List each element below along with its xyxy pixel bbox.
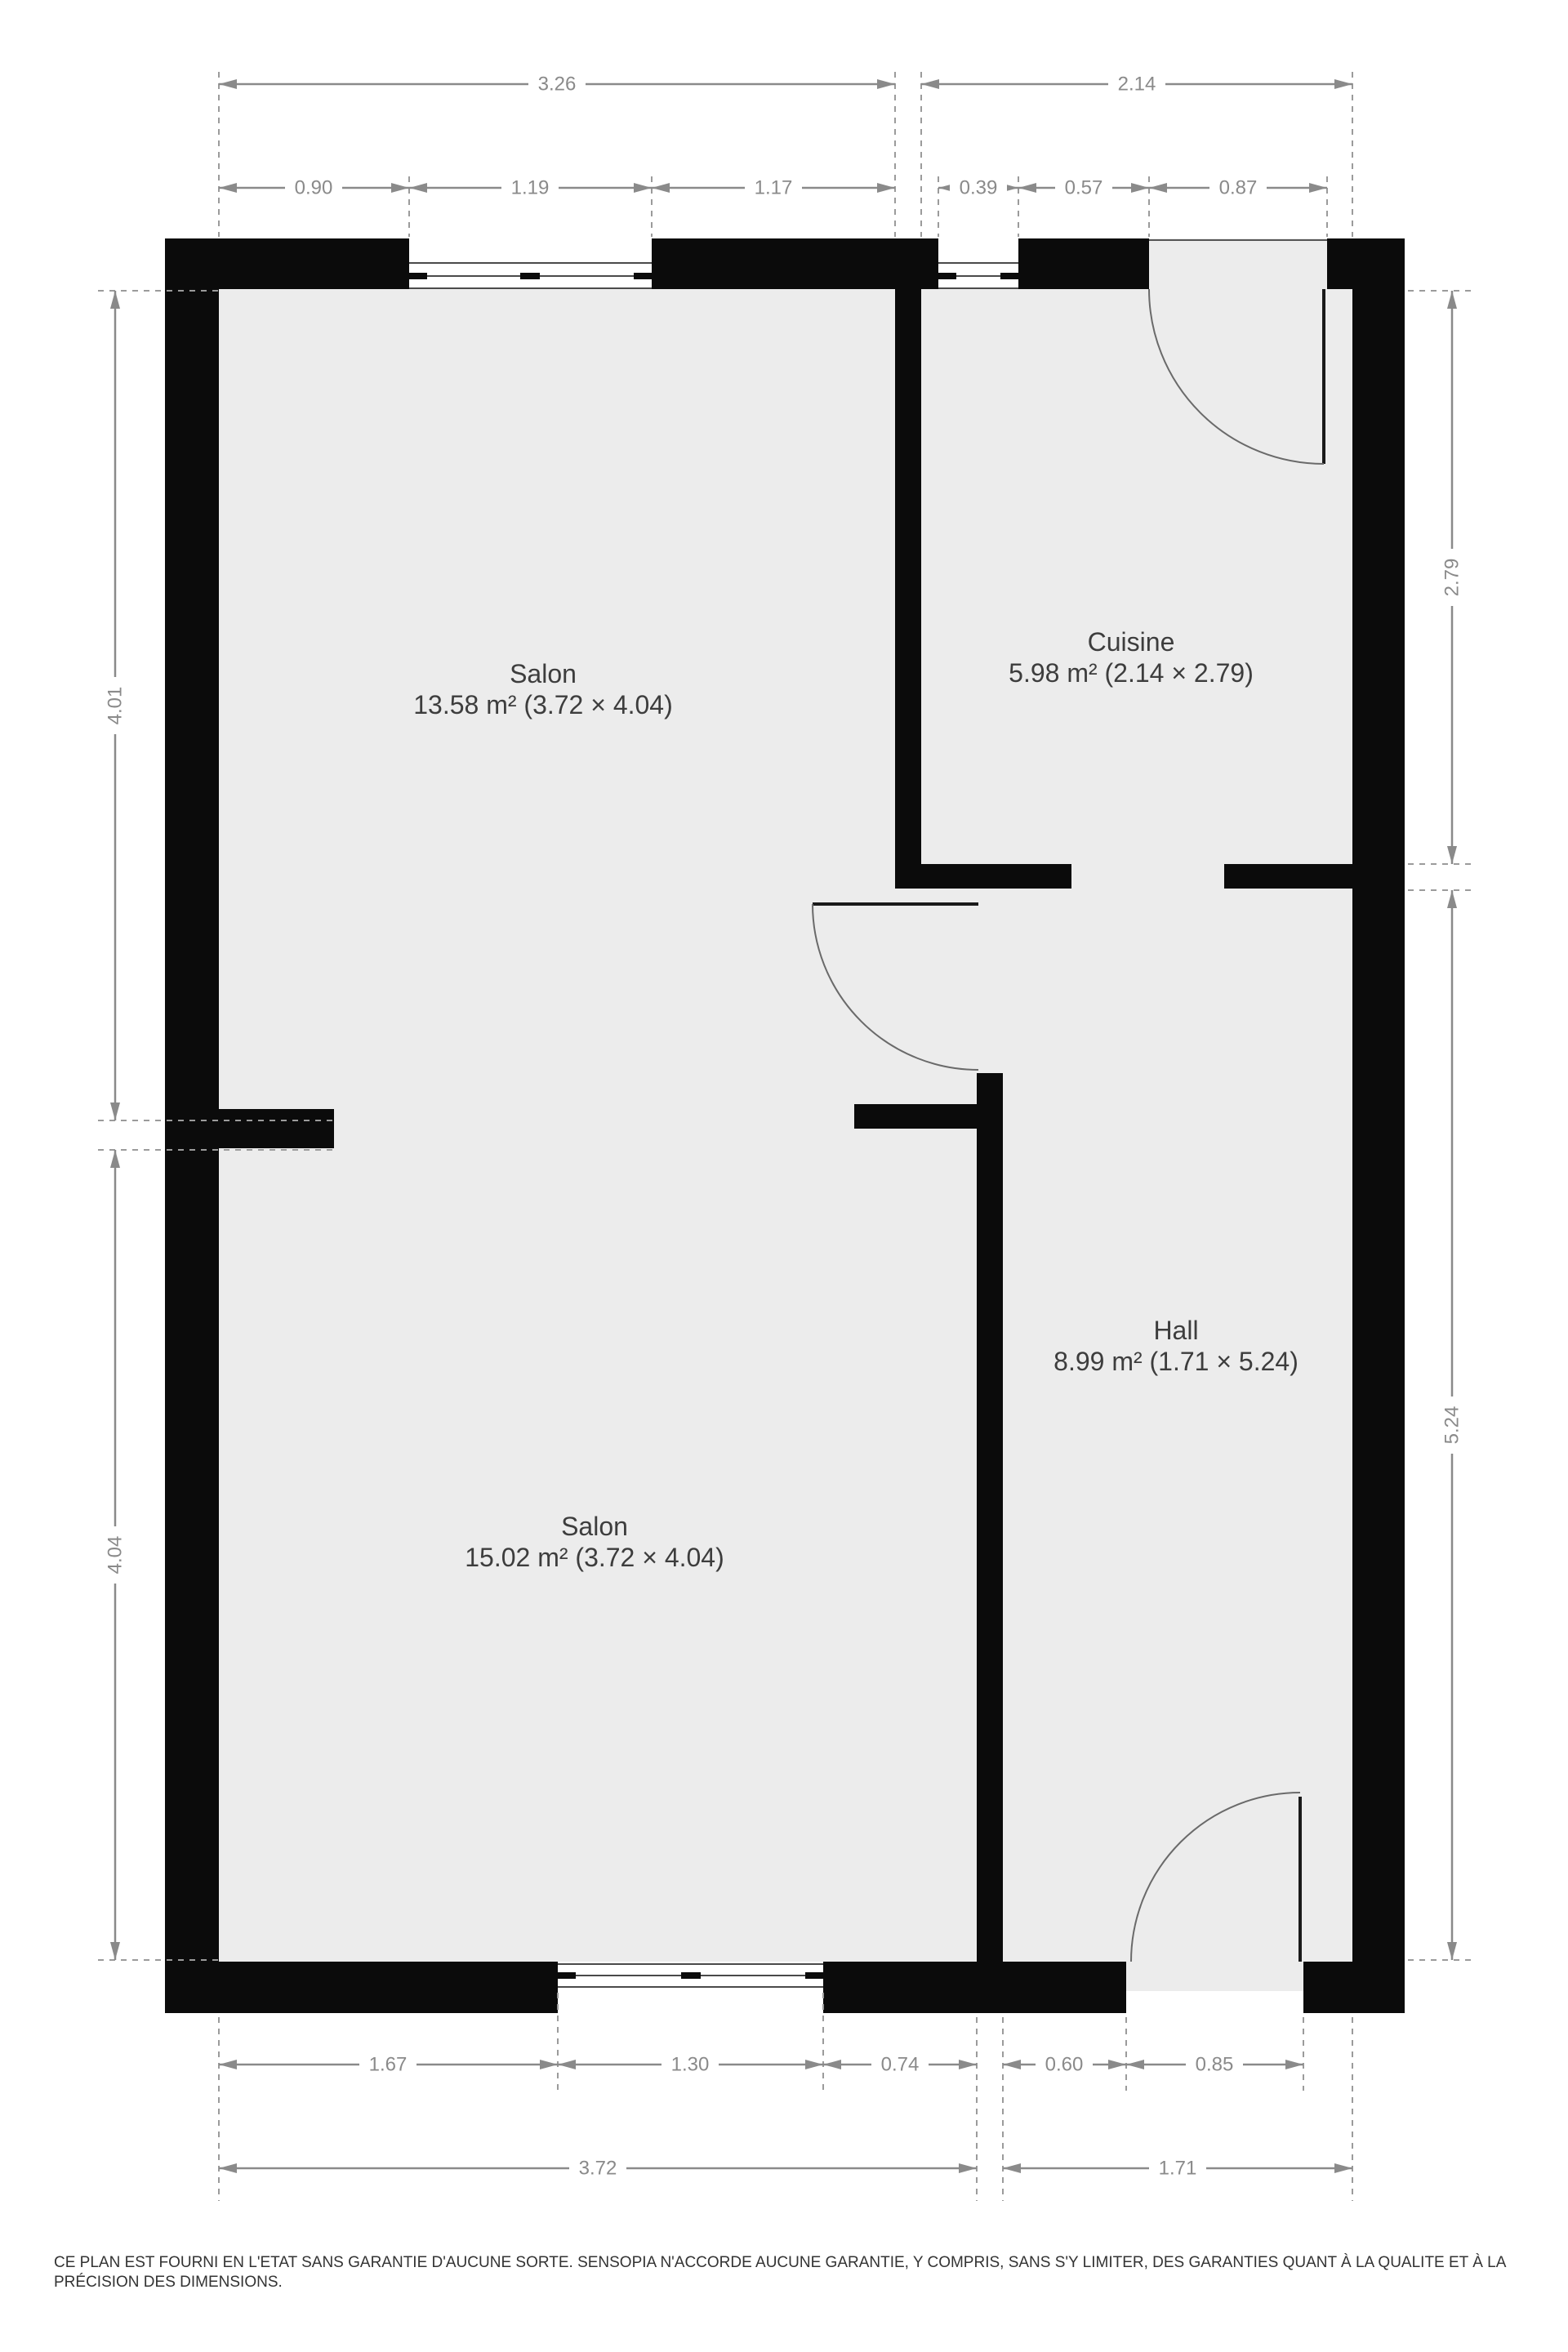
dim-label-group: 1.17	[745, 176, 802, 200]
wall-segment-bottom-1	[165, 1962, 558, 2013]
wall-right	[1352, 238, 1405, 2013]
dimension-label: 4.04	[105, 1536, 127, 1575]
floor-area-top-door-gap	[1149, 238, 1327, 289]
dim-label-group: 1.71	[1149, 2156, 1206, 2180]
dim-label-group: 1.67	[359, 2052, 416, 2077]
disclaimer-line-1: CE PLAN EST FOURNI EN L'ETAT SANS GARANT…	[54, 2254, 1507, 2271]
dimension-label: 1.19	[511, 177, 550, 199]
dim-label-group: 1.19	[501, 176, 559, 200]
room-size-label: 15.02 m² (3.72 × 4.04)	[465, 1543, 724, 1572]
dimension-label: 1.17	[755, 177, 793, 199]
dimension-label: 5.24	[1441, 1406, 1463, 1445]
dim-label-group: 0.85	[1186, 2052, 1243, 2077]
dim-label-group: 0.87	[1209, 176, 1267, 200]
dimension-label: 3.72	[579, 2158, 617, 2180]
dimension-label: 0.60	[1045, 2054, 1084, 2076]
window-tick	[681, 1972, 701, 1979]
wall-stub-left	[165, 1109, 334, 1148]
window-tick	[558, 1972, 576, 1979]
floor-areas	[219, 238, 1352, 1991]
wall-divider-right	[1224, 864, 1352, 889]
window-tick	[409, 273, 427, 279]
floor-area	[219, 289, 1352, 1962]
wall-segment-bottom-2	[823, 1962, 1126, 2013]
dimension-label: 4.01	[105, 687, 127, 725]
dim-label-group: 4.01	[103, 677, 127, 734]
wall-hall-left	[977, 1073, 1003, 2013]
dimension-label: 0.39	[960, 177, 998, 199]
window-1	[409, 238, 652, 289]
window-2	[938, 238, 1018, 289]
dimension-label: 0.90	[295, 177, 333, 199]
dim-label-group: 1.30	[661, 2052, 719, 2077]
room-name-label: Cuisine	[1088, 627, 1175, 657]
dim-label-group: 2.14	[1108, 72, 1165, 96]
dim-label-group: 0.57	[1055, 176, 1112, 200]
floor-plan-svg: 3.26 2.14 0.90 1.19 1.17 0.39 0.57 0.87 …	[0, 0, 1568, 2352]
dimension-label: 1.30	[671, 2054, 710, 2076]
dim-label-group: 2.79	[1440, 549, 1464, 606]
room-size-label: 8.99 m² (1.71 × 5.24)	[1053, 1347, 1298, 1376]
room-size-label: 5.98 m² (2.14 × 2.79)	[1009, 658, 1254, 688]
window-tick	[805, 1972, 823, 1979]
wall-divider-left	[895, 864, 1071, 889]
dimension-label: 1.71	[1159, 2158, 1197, 2180]
dim-label-group: 0.60	[1036, 2052, 1093, 2077]
disclaimer-line-2: PRÉCISION DES DIMENSIONS.	[54, 2274, 283, 2291]
dimension-label: 2.14	[1118, 73, 1156, 96]
dim-label-group: 3.26	[528, 72, 586, 96]
dimension-label: 0.57	[1065, 177, 1103, 199]
dim-label-group: 4.04	[103, 1526, 127, 1584]
dim-label-group: 3.72	[569, 2156, 626, 2180]
dim-label-group: 0.90	[285, 176, 342, 200]
window-tick	[1000, 273, 1018, 279]
dim-label-group: 0.39	[950, 176, 1007, 200]
window-tick	[520, 273, 540, 279]
window-tick	[938, 273, 956, 279]
dimension-label: 3.26	[538, 73, 577, 96]
window-3	[558, 1962, 823, 2013]
window-tick	[634, 273, 652, 279]
dimension-label: 0.74	[881, 2054, 920, 2076]
dimension-label: 2.79	[1441, 559, 1463, 597]
wall-segment-top-3	[1018, 238, 1149, 289]
room-name-label: Salon	[510, 659, 577, 688]
floor-plan: 3.26 2.14 0.90 1.19 1.17 0.39 0.57 0.87 …	[0, 0, 1568, 2352]
room-name-label: Hall	[1153, 1316, 1198, 1345]
dimension-label: 0.87	[1219, 177, 1258, 199]
wall-stub-hall	[854, 1104, 1003, 1129]
room-size-label: 13.58 m² (3.72 × 4.04)	[413, 690, 673, 719]
dimension-label: 1.67	[369, 2054, 408, 2076]
wall-middle-vertical	[895, 238, 921, 889]
disclaimer: CE PLAN EST FOURNI EN L'ETAT SANS GARANT…	[54, 2254, 1507, 2291]
dim-label-group: 5.24	[1440, 1396, 1464, 1454]
floor-area-bottom-door-gap	[1126, 1962, 1303, 1991]
dimension-label: 0.85	[1196, 2054, 1234, 2076]
wall-segment-bottom-3	[1303, 1962, 1405, 2013]
dim-label-group: 0.74	[871, 2052, 929, 2077]
room-name-label: Salon	[561, 1512, 628, 1541]
